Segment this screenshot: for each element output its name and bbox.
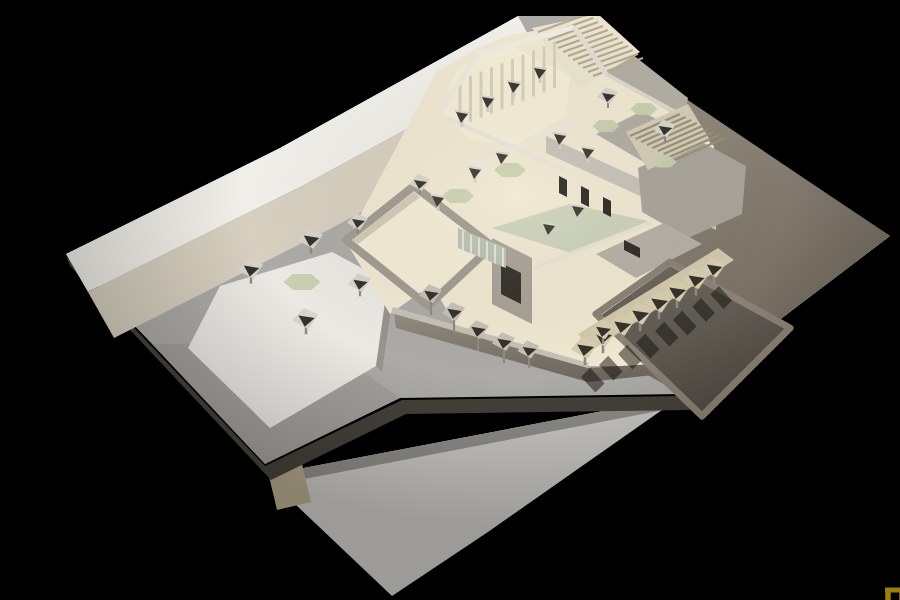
photo-glow	[40, 16, 900, 600]
architectural-model-photo	[40, 16, 900, 600]
model-scene	[40, 16, 900, 600]
